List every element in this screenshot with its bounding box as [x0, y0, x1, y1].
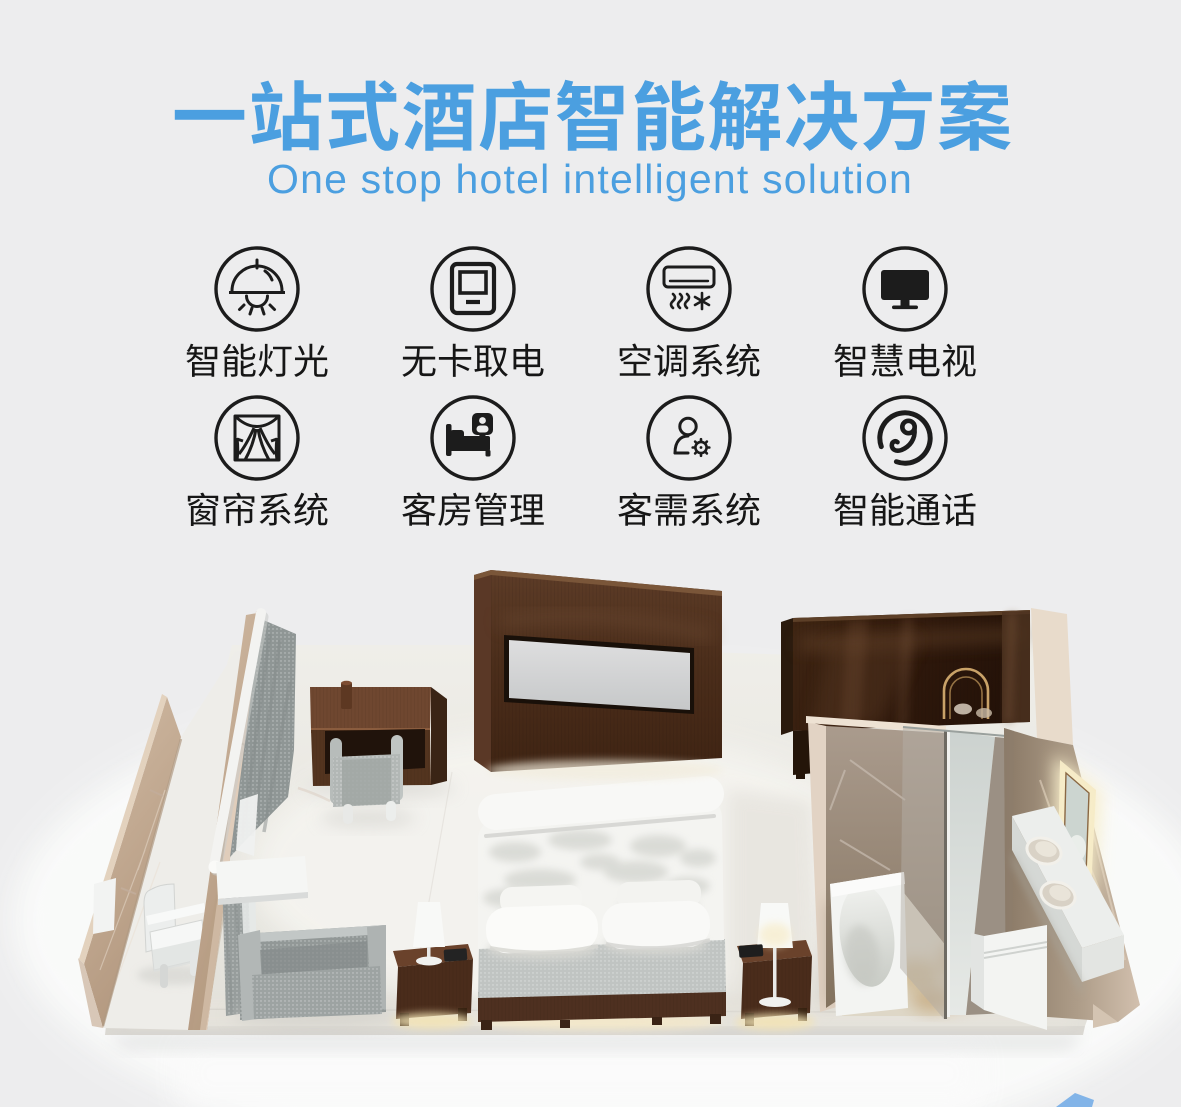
svg-text:One stop hotel intelligent sol: One stop hotel intelligent solution: [267, 156, 913, 202]
